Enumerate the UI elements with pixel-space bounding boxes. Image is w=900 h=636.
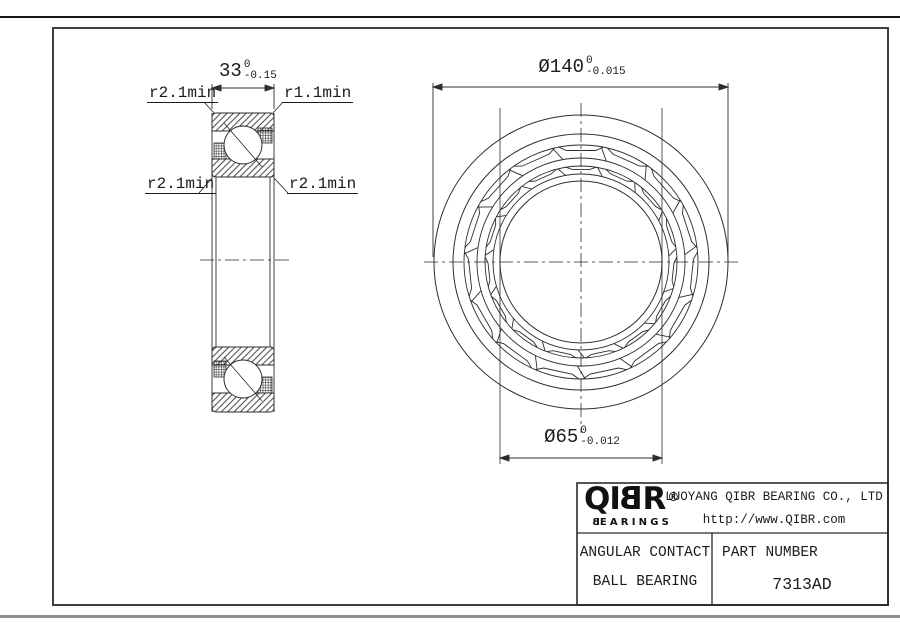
od-dim-lower-tol: -0.015: [586, 67, 626, 78]
website-url: http://www.QIBR.com: [703, 513, 846, 528]
bore-dim-value: Ø65: [544, 427, 578, 447]
part-number-value: 7313AD: [772, 576, 831, 594]
product-name-line2: BALL BEARING: [593, 574, 697, 590]
qibr-logo-bearings-text: BEARINGS: [589, 517, 679, 528]
od-dim-tolerance: 0 -0.015: [586, 56, 626, 78]
part-number-label: PART NUMBER: [722, 545, 818, 561]
width-dim-tolerance: 0 -0.15: [244, 60, 277, 82]
logo-sub-rest: EARINGS: [600, 517, 672, 528]
section-view: [200, 113, 290, 412]
width-dimension-lines: [212, 84, 274, 109]
width-dim-lower-tol: -0.15: [244, 71, 277, 82]
bore-dimension-text: Ø65 0 -0.012: [544, 426, 620, 448]
dim-arrow-right: [719, 84, 728, 90]
bore-dim-tolerance: 0 -0.012: [580, 426, 620, 448]
logo-letter-b-mirrored: B: [620, 484, 643, 514]
company-name: LUOYANG QIBR BEARING CO., LTD: [665, 490, 883, 505]
width-dimension-text: 33 0 -0.15: [219, 60, 277, 82]
radius-label-mid-right: r2.1min: [287, 176, 358, 194]
od-dim-value: Ø140: [538, 57, 584, 77]
logo-letter-r: R: [643, 484, 666, 514]
bore-dimension-lines: [500, 455, 662, 461]
bore-dim-lower-tol: -0.012: [580, 437, 620, 448]
dim-arrow-left: [500, 455, 509, 461]
drawing-linework: [0, 0, 900, 636]
logo-letter-i: I: [609, 484, 620, 514]
front-view: [424, 103, 740, 464]
radius-label-top-right: r1.1min: [282, 85, 353, 103]
radius-label-mid-left: r2.1min: [145, 176, 216, 194]
dim-arrow-left: [433, 84, 442, 90]
od-dimension-text: Ø140 0 -0.015: [538, 56, 625, 78]
od-dimension-lines: [433, 83, 728, 257]
logo-letter-q: Q: [584, 484, 609, 514]
logo-sub-b-mirrored: B: [589, 517, 600, 528]
radius-label-top-left: r2.1min: [147, 85, 218, 103]
width-dim-value: 33: [219, 61, 242, 81]
dim-arrow-right: [265, 85, 274, 91]
drawing-sheet: 33 0 -0.15 Ø140 0 -0.015 Ø65 0 -0.012 r2…: [0, 0, 900, 636]
dim-arrow-right: [653, 455, 662, 461]
bore-cylinder-lines: [212, 177, 274, 347]
product-name-line1: ANGULAR CONTACT: [580, 545, 711, 561]
